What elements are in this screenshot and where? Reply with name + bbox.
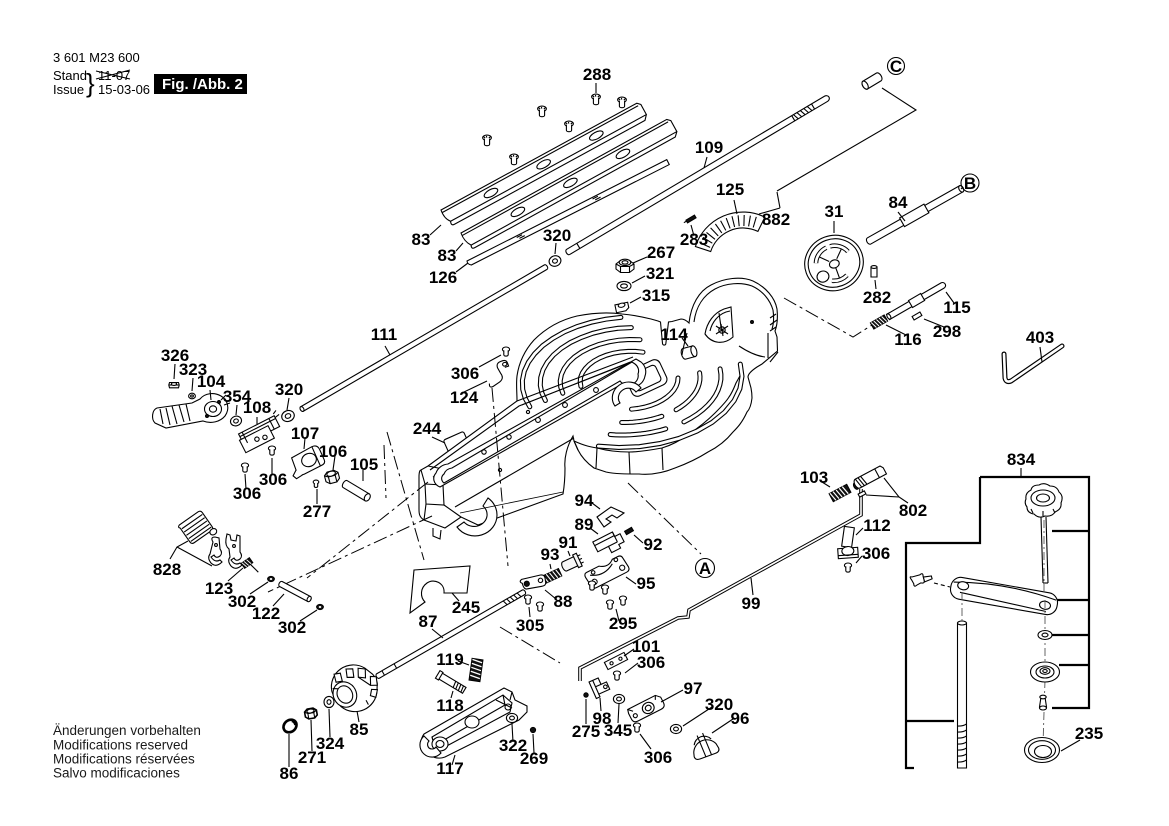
svg-text:403: 403: [1026, 328, 1054, 347]
svg-text:126: 126: [429, 268, 457, 287]
svg-text:345: 345: [604, 721, 632, 740]
svg-text:15-03-06: 15-03-06: [98, 82, 150, 97]
svg-text:306: 306: [862, 544, 890, 563]
svg-text:}: }: [86, 68, 95, 98]
svg-text:106: 106: [319, 442, 347, 461]
svg-text:298: 298: [933, 322, 961, 341]
svg-text:84: 84: [889, 193, 908, 212]
svg-text:105: 105: [350, 455, 378, 474]
svg-text:104: 104: [197, 372, 226, 391]
svg-text:283: 283: [680, 230, 708, 249]
svg-text:3 601 M23 600: 3 601 M23 600: [53, 50, 140, 65]
svg-text:B: B: [964, 174, 976, 193]
svg-text:Modifications réservées: Modifications réservées: [53, 752, 195, 767]
svg-text:83: 83: [412, 230, 431, 249]
svg-text:117: 117: [436, 759, 463, 778]
svg-text:320: 320: [543, 226, 571, 245]
svg-text:Änderungen vorbehalten: Änderungen vorbehalten: [53, 723, 201, 738]
svg-text:802: 802: [899, 501, 927, 520]
svg-text:89: 89: [575, 515, 594, 534]
svg-text:86: 86: [280, 764, 299, 783]
svg-text:91: 91: [559, 533, 578, 552]
svg-text:103: 103: [800, 468, 828, 487]
svg-text:306: 306: [451, 364, 479, 383]
svg-text:Issue: Issue: [53, 82, 84, 97]
svg-text:235: 235: [1075, 724, 1103, 743]
svg-text:Modifications reserved: Modifications reserved: [53, 738, 188, 753]
svg-text:118: 118: [436, 696, 463, 715]
svg-text:Stand: Stand: [53, 68, 87, 83]
svg-text:834: 834: [1007, 450, 1036, 469]
svg-text:124: 124: [450, 388, 479, 407]
svg-text:271: 271: [298, 748, 326, 767]
svg-text:116: 116: [894, 330, 921, 349]
svg-text:306: 306: [644, 748, 672, 767]
svg-text:119: 119: [436, 650, 463, 669]
svg-text:306: 306: [233, 484, 261, 503]
svg-text:320: 320: [275, 380, 303, 399]
svg-text:114: 114: [660, 325, 688, 344]
svg-text:321: 321: [646, 264, 674, 283]
svg-text:315: 315: [642, 286, 670, 305]
svg-text:882: 882: [762, 210, 790, 229]
svg-text:269: 269: [520, 749, 548, 768]
svg-text:85: 85: [350, 720, 369, 739]
svg-text:93: 93: [541, 545, 560, 564]
svg-text:87: 87: [419, 612, 438, 631]
svg-text:306: 306: [259, 470, 287, 489]
svg-text:C: C: [890, 57, 902, 76]
svg-text:112: 112: [863, 516, 890, 535]
svg-text:108: 108: [243, 398, 271, 417]
svg-text:245: 245: [452, 598, 480, 617]
svg-text:320: 320: [705, 695, 733, 714]
svg-text:275: 275: [572, 722, 600, 741]
svg-text:109: 109: [695, 138, 723, 157]
svg-text:111: 111: [371, 325, 398, 344]
svg-text:302: 302: [278, 618, 306, 637]
svg-text:97: 97: [684, 679, 703, 698]
svg-text:267: 267: [647, 243, 675, 262]
svg-text:288: 288: [583, 65, 611, 84]
svg-text:306: 306: [637, 653, 665, 672]
svg-text:94: 94: [575, 491, 594, 510]
svg-text:305: 305: [516, 616, 544, 635]
svg-text:A: A: [699, 559, 711, 578]
svg-text:122: 122: [252, 604, 280, 623]
svg-text:244: 244: [413, 419, 442, 438]
svg-text:Fig. /Abb. 2: Fig. /Abb. 2: [162, 76, 243, 93]
svg-text:96: 96: [731, 709, 750, 728]
svg-text:125: 125: [716, 180, 744, 199]
svg-text:277: 277: [303, 502, 331, 521]
svg-text:83: 83: [438, 246, 457, 265]
svg-text:282: 282: [863, 288, 891, 307]
svg-text:92: 92: [644, 535, 663, 554]
svg-text:31: 31: [825, 202, 844, 221]
svg-text:99: 99: [742, 594, 761, 613]
svg-text:295: 295: [609, 614, 637, 633]
svg-text:107: 107: [291, 424, 319, 443]
svg-text:115: 115: [943, 298, 970, 317]
svg-text:Salvo modificaciones: Salvo modificaciones: [53, 766, 180, 781]
svg-text:88: 88: [554, 592, 573, 611]
svg-text:95: 95: [637, 574, 656, 593]
svg-text:828: 828: [153, 560, 181, 579]
